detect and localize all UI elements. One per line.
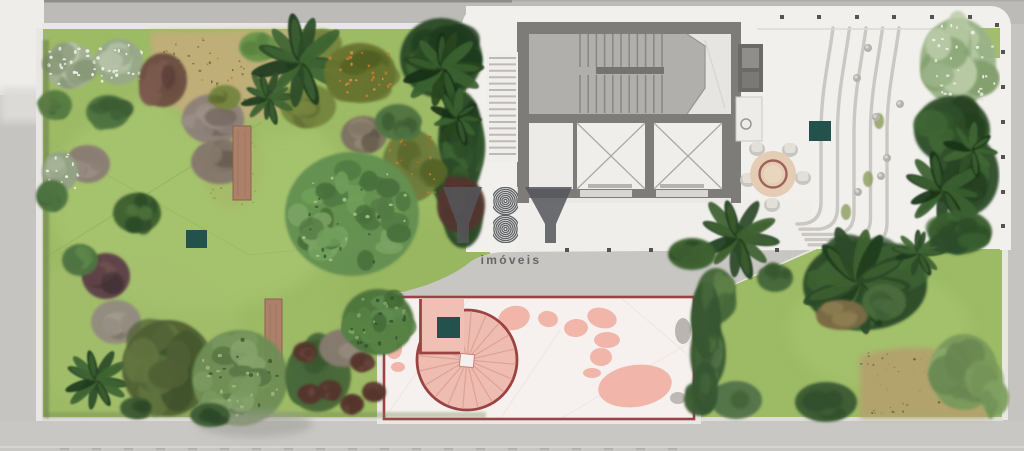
svg-text:imóveis: imóveis: [481, 253, 542, 267]
